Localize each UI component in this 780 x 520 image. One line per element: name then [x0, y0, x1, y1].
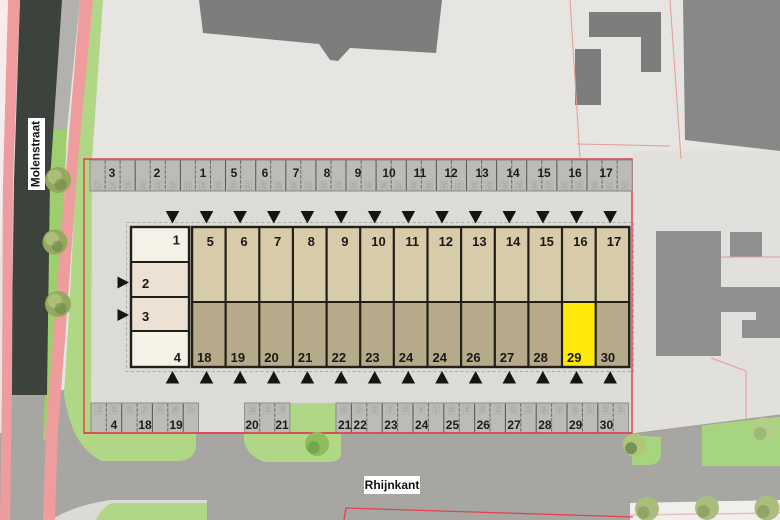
- svg-text:54: 54: [542, 406, 548, 412]
- svg-text:48: 48: [450, 406, 456, 412]
- svg-text:29: 29: [567, 350, 581, 365]
- svg-text:24: 24: [399, 350, 414, 365]
- svg-text:39: 39: [265, 406, 271, 412]
- svg-text:47: 47: [547, 182, 553, 188]
- svg-text:28: 28: [538, 418, 552, 432]
- svg-text:51: 51: [496, 406, 502, 412]
- svg-text:13: 13: [472, 234, 486, 249]
- svg-text:5: 5: [231, 166, 238, 180]
- svg-text:56: 56: [573, 406, 579, 412]
- svg-text:53: 53: [527, 406, 533, 412]
- svg-text:5: 5: [207, 234, 214, 249]
- svg-text:24: 24: [201, 182, 207, 188]
- svg-text:14: 14: [506, 234, 521, 249]
- svg-text:26: 26: [466, 350, 480, 365]
- svg-text:24: 24: [415, 418, 429, 432]
- svg-text:29: 29: [569, 418, 583, 432]
- svg-text:8: 8: [308, 234, 315, 249]
- svg-text:6: 6: [262, 166, 269, 180]
- svg-text:52: 52: [511, 406, 517, 412]
- svg-text:48: 48: [563, 182, 569, 188]
- svg-text:50: 50: [593, 182, 599, 188]
- svg-text:4: 4: [174, 350, 182, 365]
- svg-text:52: 52: [623, 182, 629, 188]
- svg-text:6: 6: [240, 234, 247, 249]
- svg-text:7: 7: [293, 166, 300, 180]
- svg-text:28: 28: [533, 350, 547, 365]
- svg-text:3: 3: [142, 309, 149, 324]
- svg-text:35: 35: [158, 406, 164, 412]
- svg-text:17: 17: [607, 234, 621, 249]
- svg-text:19: 19: [231, 350, 245, 365]
- svg-text:31: 31: [97, 406, 103, 412]
- svg-text:37: 37: [189, 406, 195, 412]
- svg-text:25: 25: [216, 182, 222, 188]
- svg-text:59: 59: [619, 406, 625, 412]
- svg-text:23: 23: [365, 350, 379, 365]
- svg-text:14: 14: [506, 166, 520, 180]
- svg-text:49: 49: [578, 182, 584, 188]
- svg-text:22: 22: [332, 350, 346, 365]
- svg-text:21: 21: [338, 418, 352, 432]
- svg-text:21: 21: [298, 350, 312, 365]
- svg-text:8: 8: [324, 166, 331, 180]
- svg-text:18: 18: [138, 418, 152, 432]
- svg-text:42: 42: [472, 182, 478, 188]
- svg-text:38: 38: [412, 182, 418, 188]
- svg-text:44: 44: [502, 182, 508, 188]
- svg-text:51: 51: [608, 182, 614, 188]
- svg-text:44: 44: [388, 406, 394, 412]
- svg-text:35: 35: [367, 182, 373, 188]
- svg-text:45: 45: [517, 182, 523, 188]
- svg-text:57: 57: [588, 406, 594, 412]
- svg-text:20: 20: [141, 182, 147, 188]
- svg-text:16: 16: [568, 166, 582, 180]
- svg-text:16: 16: [573, 234, 587, 249]
- svg-text:29: 29: [276, 182, 282, 188]
- svg-text:38: 38: [250, 406, 256, 412]
- svg-text:37: 37: [397, 182, 403, 188]
- svg-text:30: 30: [601, 350, 615, 365]
- svg-text:24: 24: [433, 350, 448, 365]
- svg-text:18: 18: [111, 182, 117, 188]
- svg-text:18: 18: [197, 350, 211, 365]
- svg-text:47: 47: [434, 406, 440, 412]
- svg-text:2: 2: [142, 276, 149, 291]
- svg-text:2: 2: [154, 166, 161, 180]
- svg-text:4: 4: [111, 418, 118, 432]
- svg-text:50: 50: [480, 406, 486, 412]
- svg-text:22: 22: [353, 418, 367, 432]
- svg-text:23: 23: [384, 418, 398, 432]
- svg-text:43: 43: [373, 406, 379, 412]
- svg-text:20: 20: [264, 350, 278, 365]
- svg-text:1: 1: [200, 166, 207, 180]
- svg-text:30: 30: [291, 182, 297, 188]
- svg-text:28: 28: [261, 182, 267, 188]
- svg-text:7: 7: [274, 234, 281, 249]
- svg-text:55: 55: [557, 406, 563, 412]
- svg-text:27: 27: [507, 418, 521, 432]
- svg-text:23: 23: [186, 182, 192, 188]
- svg-text:31: 31: [307, 182, 313, 188]
- svg-text:19: 19: [169, 418, 183, 432]
- svg-text:46: 46: [532, 182, 538, 188]
- svg-text:26: 26: [231, 182, 237, 188]
- svg-text:46: 46: [419, 406, 425, 412]
- svg-text:Rhijnkant: Rhijnkant: [365, 478, 420, 492]
- svg-text:12: 12: [439, 234, 453, 249]
- svg-text:20: 20: [245, 418, 259, 432]
- svg-text:26: 26: [477, 418, 491, 432]
- svg-text:34: 34: [352, 182, 358, 188]
- svg-text:11: 11: [414, 166, 427, 180]
- svg-text:19: 19: [126, 182, 132, 188]
- svg-text:17: 17: [599, 166, 613, 180]
- svg-text:36: 36: [382, 182, 388, 188]
- svg-text:45: 45: [403, 406, 409, 412]
- svg-text:25: 25: [446, 418, 460, 432]
- svg-text:15: 15: [537, 166, 551, 180]
- svg-text:39: 39: [427, 182, 433, 188]
- svg-text:41: 41: [457, 182, 463, 188]
- svg-text:32: 32: [112, 406, 118, 412]
- svg-text:9: 9: [341, 234, 348, 249]
- svg-text:13: 13: [475, 166, 489, 180]
- svg-text:27: 27: [500, 350, 514, 365]
- svg-text:1: 1: [173, 233, 180, 248]
- svg-text:58: 58: [604, 406, 610, 412]
- svg-text:21: 21: [275, 418, 289, 432]
- svg-text:41: 41: [342, 406, 348, 412]
- svg-text:11: 11: [405, 234, 419, 249]
- svg-text:42: 42: [357, 406, 363, 412]
- svg-text:43: 43: [487, 182, 493, 188]
- svg-text:36: 36: [174, 406, 180, 412]
- svg-text:32: 32: [322, 182, 328, 188]
- svg-text:15: 15: [539, 234, 553, 249]
- svg-text:Molenstraat: Molenstraat: [29, 121, 43, 187]
- svg-text:12: 12: [444, 166, 458, 180]
- svg-text:34: 34: [143, 406, 149, 412]
- svg-text:10: 10: [382, 166, 396, 180]
- svg-text:22: 22: [171, 182, 177, 188]
- svg-text:49: 49: [465, 406, 471, 412]
- svg-text:9: 9: [355, 166, 362, 180]
- svg-text:21: 21: [156, 182, 162, 188]
- svg-text:30: 30: [600, 418, 614, 432]
- svg-text:33: 33: [337, 182, 343, 188]
- svg-text:27: 27: [246, 182, 252, 188]
- svg-text:40: 40: [281, 406, 287, 412]
- svg-text:33: 33: [128, 406, 134, 412]
- svg-text:3: 3: [109, 166, 116, 180]
- svg-text:17: 17: [96, 182, 102, 188]
- svg-text:10: 10: [371, 234, 385, 249]
- svg-text:40: 40: [442, 182, 448, 188]
